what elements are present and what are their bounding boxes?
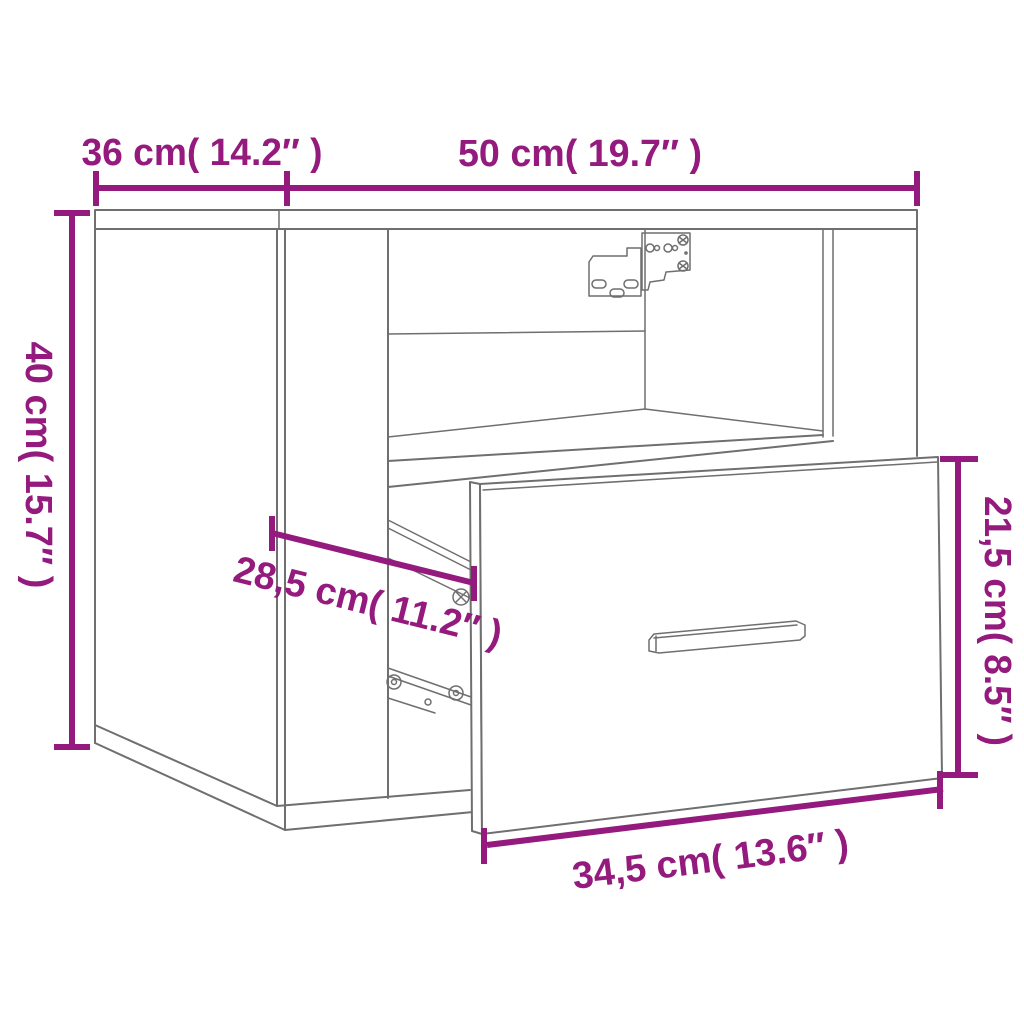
dimension-depth-top: 36 cm( 14.2″ ) 50 cm( 19.7″ )	[82, 132, 921, 206]
bracket-screws	[646, 235, 688, 271]
dimension-label-drawer-height: 21,5 cm( 8.5″ )	[976, 496, 1018, 746]
drawer-front	[480, 457, 942, 834]
dimension-label-width: 50 cm( 19.7″ )	[458, 133, 702, 175]
drawer	[470, 457, 942, 834]
left-side-panel	[95, 229, 285, 830]
dimension-label-height: 40 cm( 15.7″ )	[17, 342, 59, 589]
niche-back-panel	[388, 230, 645, 409]
bracket-slot	[592, 280, 606, 288]
drawer-slide-rail-lower	[387, 668, 471, 713]
wall-cabinet-diagram: 36 cm( 14.2″ ) 50 cm( 19.7″ ) 40 cm( 15.…	[0, 0, 1024, 1024]
dimension-drawer-height-right: 21,5 cm( 8.5″ )	[940, 459, 1018, 775]
dimension-label-inner-depth: 28,5 cm( 11.2″ )	[229, 549, 506, 656]
dimension-label-depth: 36 cm( 14.2″ )	[82, 132, 323, 174]
niche-right-wall	[823, 230, 833, 437]
cabinet-top-panel	[95, 210, 917, 229]
cabinet-drawing	[95, 210, 942, 834]
product-dimension-diagram: 36 cm( 14.2″ ) 50 cm( 19.7″ ) 40 cm( 15.…	[0, 0, 1024, 1024]
dimension-inner-depth-middle: 28,5 cm( 11.2″ )	[229, 516, 506, 656]
dimension-height-left: 40 cm( 15.7″ )	[17, 213, 90, 747]
bottom-panel-band	[277, 790, 473, 830]
wall-mount-bracket	[589, 233, 690, 297]
dimension-label-drawer-width: 34,5 cm( 13.6″ )	[570, 822, 851, 898]
bracket-slot	[624, 280, 638, 288]
